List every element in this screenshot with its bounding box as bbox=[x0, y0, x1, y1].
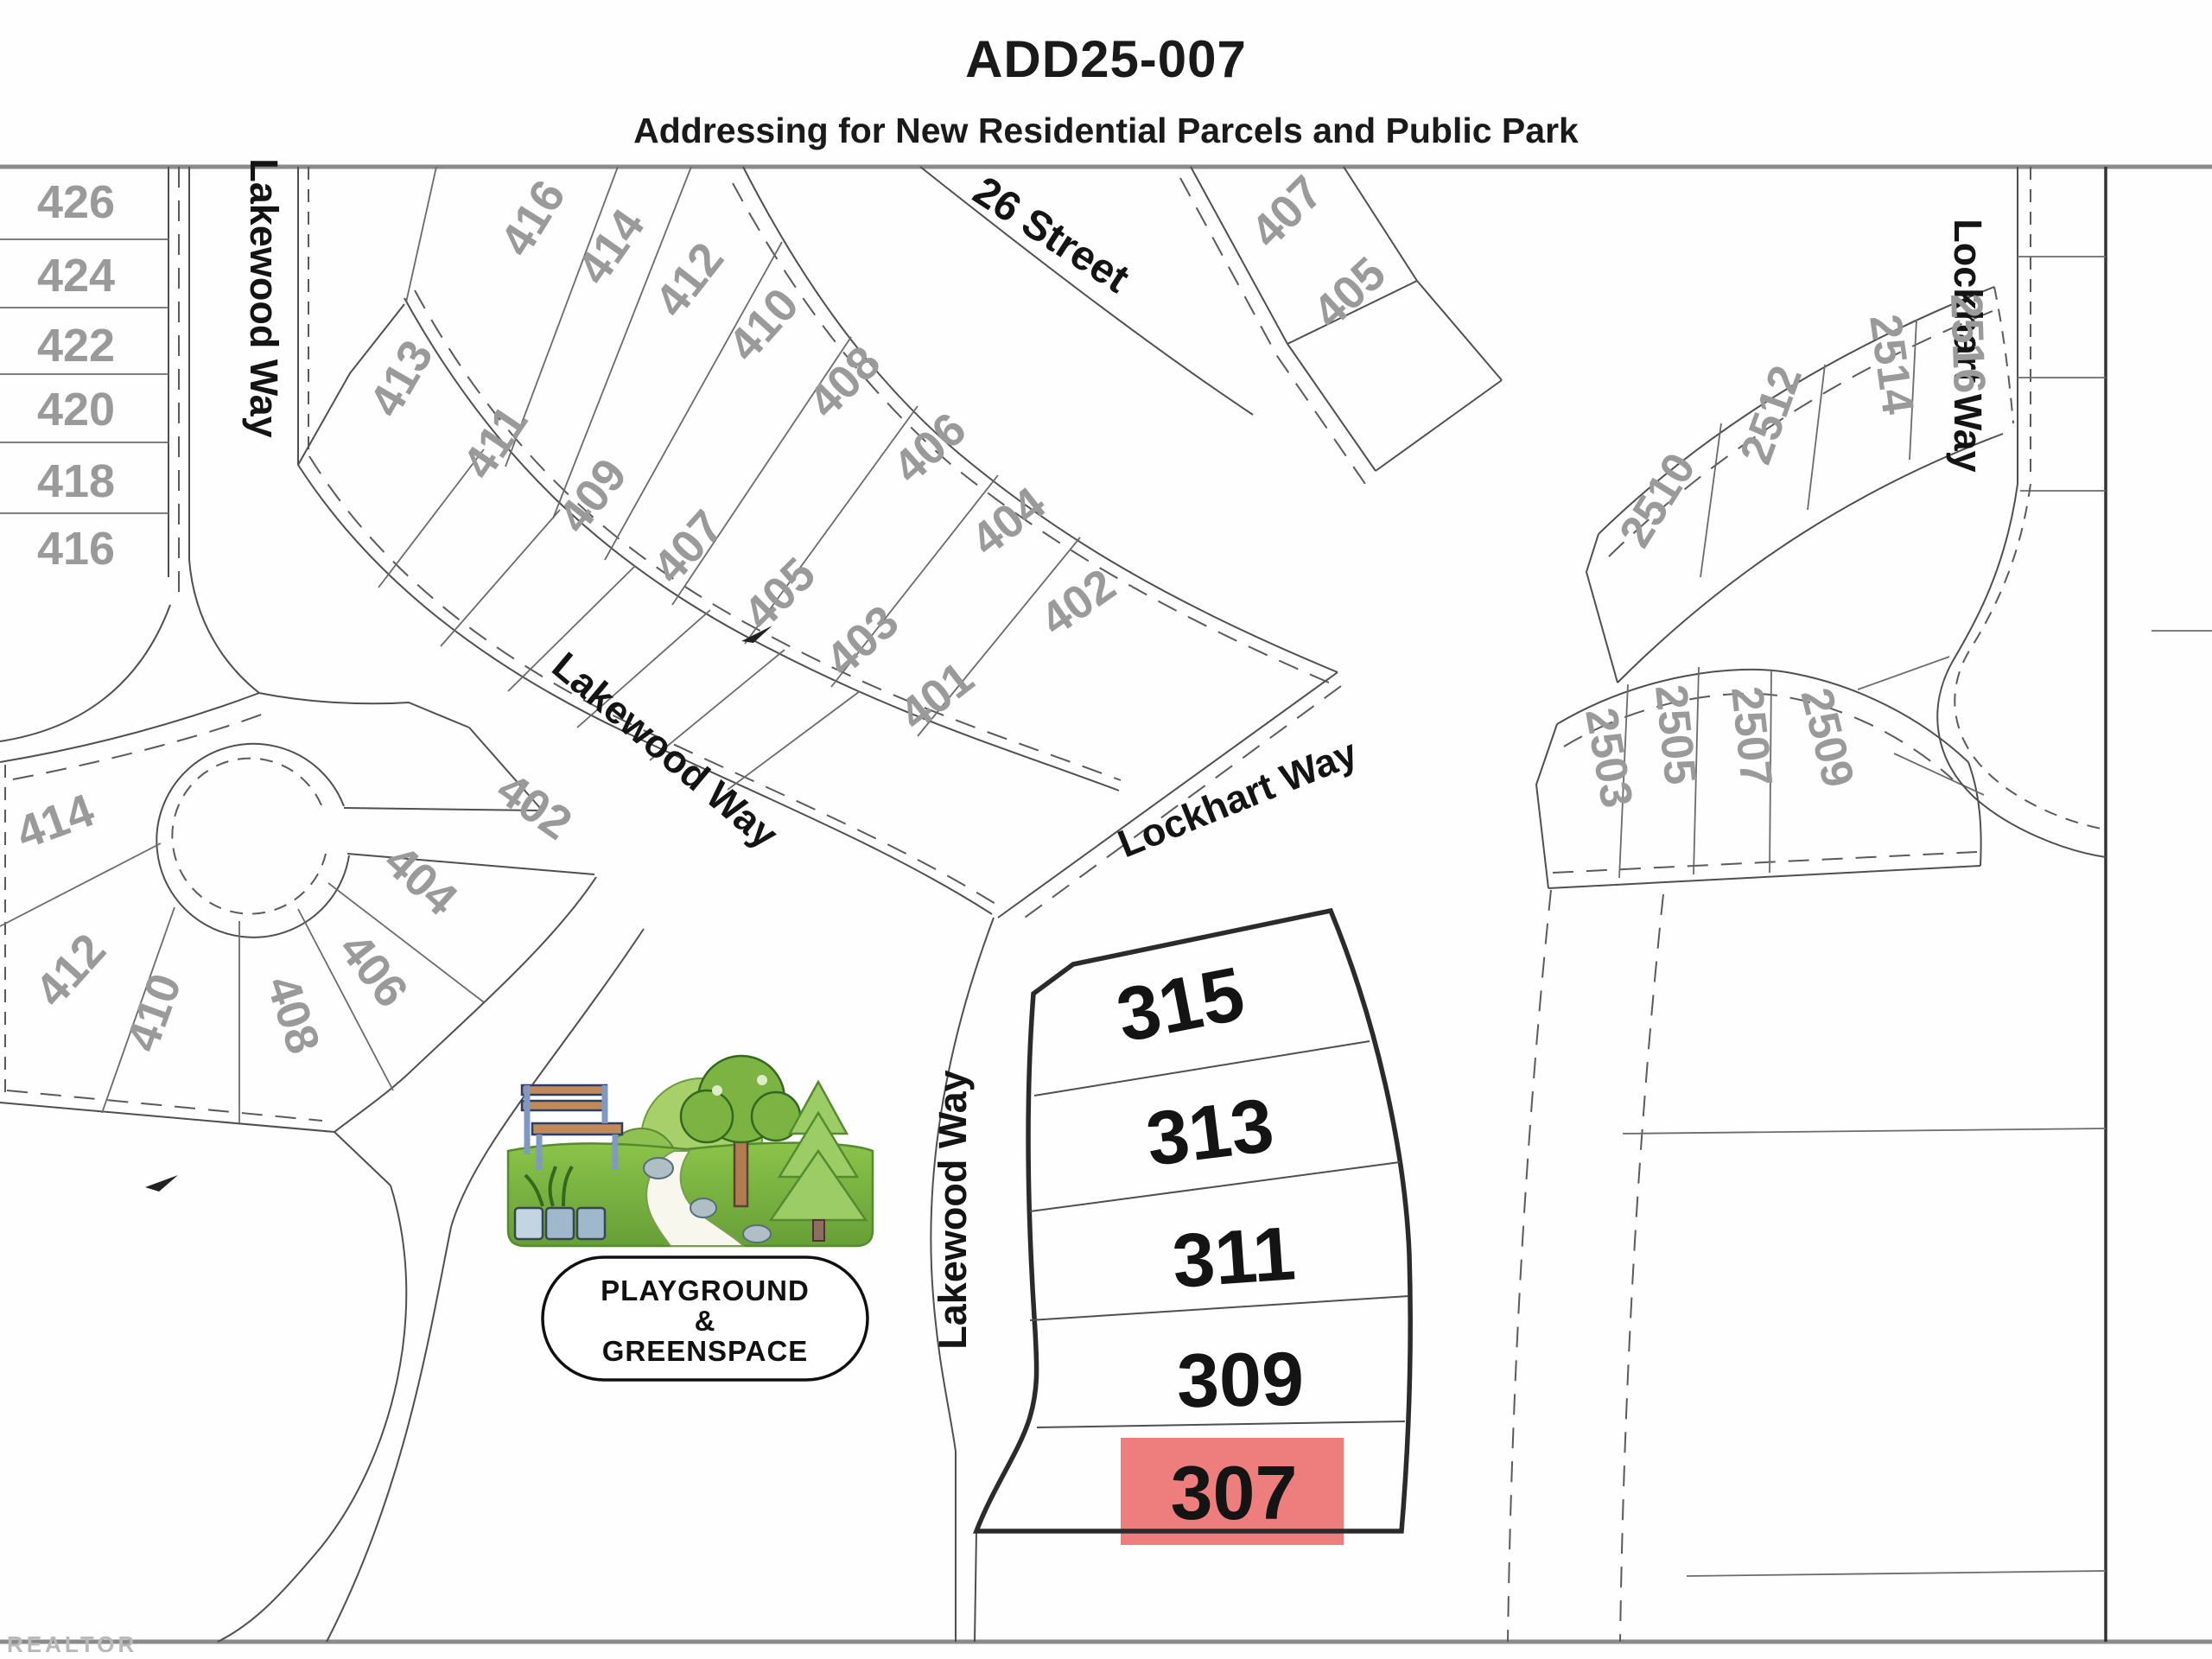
parcel-407: 407 bbox=[643, 500, 734, 593]
parcel-2505: 2505 bbox=[1645, 683, 1706, 787]
parcel-315: 315 bbox=[1110, 950, 1251, 1058]
park-illustration bbox=[508, 1056, 873, 1246]
parcel-416-left: 416 bbox=[37, 523, 115, 575]
plat-map: PLAYGROUND & GREENSPACE 26 Street Lakewo… bbox=[0, 0, 2212, 1659]
parcel-2516: 2516 bbox=[1941, 293, 1994, 395]
parcel-2510: 2510 bbox=[1610, 445, 1705, 556]
street-label-lockhart-diag: Lockhart Way bbox=[1112, 730, 1363, 866]
parcel-404-sw: 404 bbox=[374, 835, 467, 925]
road-lockhart-south bbox=[1508, 890, 2106, 1642]
parcel-402: 402 bbox=[1032, 559, 1125, 646]
parcel-410-sw: 410 bbox=[116, 967, 191, 1058]
parcel-414-sw: 414 bbox=[10, 784, 100, 859]
parcel-403: 403 bbox=[816, 595, 908, 686]
parcel-422: 422 bbox=[37, 320, 115, 372]
parcel-402-sw: 402 bbox=[487, 763, 581, 850]
plat-map-page: ADD25-007 Addressing for New Residential… bbox=[0, 0, 2212, 1659]
parcel-307-highlighted: 307 bbox=[1171, 1450, 1298, 1535]
park-label-line2: & bbox=[695, 1305, 716, 1337]
parcel-2514: 2514 bbox=[1859, 311, 1923, 417]
parcel-418: 418 bbox=[37, 455, 115, 507]
parcel-405: 405 bbox=[734, 548, 825, 639]
parcel-401: 401 bbox=[890, 652, 983, 741]
parcel-404: 404 bbox=[962, 477, 1055, 566]
parcel-2512: 2512 bbox=[1731, 359, 1812, 471]
parcel-409: 409 bbox=[548, 449, 637, 543]
parcel-405-ne: 405 bbox=[1303, 247, 1395, 338]
parcel-412-sw: 412 bbox=[25, 924, 116, 1016]
parcel-410: 410 bbox=[718, 278, 809, 371]
street-labels: 26 Street Lakewood Way Lakewood Way Lake… bbox=[242, 158, 1990, 1349]
parcel-labels: 426 424 422 420 418 416 416 414 412 410 … bbox=[10, 166, 1994, 1535]
parcel-309: 309 bbox=[1176, 1336, 1305, 1424]
park-label-line1: PLAYGROUND bbox=[601, 1274, 810, 1306]
parcel-426: 426 bbox=[37, 176, 115, 228]
parcel-406-sw: 406 bbox=[329, 924, 418, 1017]
parcel-414: 414 bbox=[568, 200, 655, 294]
parcel-420: 420 bbox=[37, 384, 115, 435]
street-label-lakewood-west: Lakewood Way bbox=[242, 158, 286, 437]
parcel-408-sw: 408 bbox=[257, 969, 330, 1059]
parcel-406: 406 bbox=[883, 403, 976, 493]
parcel-313: 313 bbox=[1141, 1082, 1278, 1182]
street-label-26-street: 26 Street bbox=[965, 168, 1137, 302]
street-label-lakewood-diag: Lakewood Way bbox=[544, 644, 787, 857]
parcel-311: 311 bbox=[1170, 1210, 1299, 1304]
parcel-2509: 2509 bbox=[1790, 683, 1863, 792]
parcel-408: 408 bbox=[798, 336, 890, 428]
street-label-lakewood-central: Lakewood Way bbox=[931, 1070, 975, 1349]
parcel-416: 416 bbox=[490, 171, 575, 264]
parcel-424: 424 bbox=[37, 250, 115, 302]
park-label-line3: GREENSPACE bbox=[602, 1335, 809, 1367]
parcel-407-ne: 407 bbox=[1241, 166, 1332, 257]
parcel-2507: 2507 bbox=[1721, 684, 1782, 789]
parcel-2503: 2503 bbox=[1575, 704, 1642, 811]
realtor-watermark: REALTOR bbox=[7, 1631, 137, 1657]
park-badge: PLAYGROUND & GREENSPACE bbox=[543, 1257, 868, 1380]
parcel-412: 412 bbox=[645, 233, 734, 327]
